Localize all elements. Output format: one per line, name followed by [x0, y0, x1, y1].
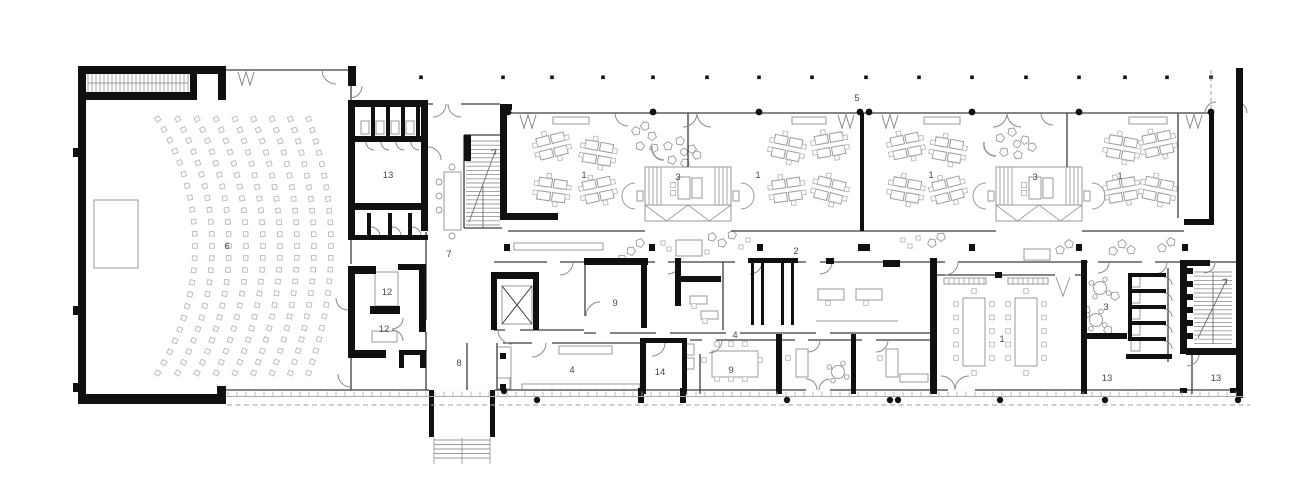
- seat: [281, 337, 287, 343]
- seat: [284, 161, 290, 167]
- door-arc: [532, 343, 546, 357]
- furniture: [1006, 302, 1011, 307]
- desk: [1145, 147, 1159, 158]
- lounge-table: [1014, 141, 1021, 148]
- seat: [224, 207, 229, 212]
- seat: [192, 231, 197, 236]
- furniture: [818, 289, 844, 300]
- seat: [200, 359, 206, 365]
- seat: [258, 279, 263, 284]
- furniture: [1042, 302, 1047, 307]
- furniture: [645, 205, 731, 221]
- seat: [199, 172, 205, 178]
- furniture: [715, 377, 720, 382]
- chair: [1102, 323, 1107, 328]
- chair: [1172, 186, 1177, 191]
- chair: [1093, 294, 1098, 299]
- chair: [612, 149, 617, 154]
- lounge-chair: [636, 142, 644, 151]
- facade-column: [1102, 397, 1108, 403]
- seat: [289, 302, 294, 307]
- desk-cluster: [1101, 129, 1143, 167]
- furniture: [954, 315, 959, 320]
- wall: [1076, 244, 1082, 251]
- seat: [227, 149, 233, 155]
- seat: [287, 314, 292, 319]
- door-triangle: [1056, 277, 1070, 296]
- coat-rack-icon: [238, 72, 254, 85]
- wall: [500, 213, 558, 220]
- room-label: 9: [612, 298, 617, 309]
- wall: [641, 258, 647, 328]
- furniture: [444, 172, 461, 230]
- chair: [826, 173, 831, 178]
- seat: [191, 337, 197, 343]
- door-arc: [560, 262, 573, 275]
- wall: [348, 203, 422, 210]
- seat: [191, 149, 197, 155]
- wall: [1128, 321, 1166, 325]
- furniture: [1131, 340, 1140, 351]
- chair: [886, 142, 891, 147]
- desk: [890, 135, 904, 146]
- chair: [769, 194, 774, 199]
- seat: [316, 150, 322, 156]
- seat: [289, 184, 294, 189]
- chair: [1170, 133, 1175, 138]
- seat: [180, 126, 186, 132]
- chair: [906, 202, 911, 207]
- furniture: [1006, 342, 1011, 347]
- room-label: 1: [755, 170, 760, 181]
- seat: [324, 302, 329, 307]
- desk-cluster: [766, 172, 807, 209]
- seat: [237, 303, 242, 308]
- desk: [585, 193, 599, 204]
- desk: [949, 139, 963, 150]
- seat: [207, 207, 212, 212]
- seat: [274, 196, 279, 201]
- furniture: [908, 244, 912, 248]
- wall: [419, 264, 426, 332]
- seat: [266, 161, 272, 167]
- furniture: [671, 191, 676, 196]
- chair: [801, 144, 806, 149]
- chair: [920, 145, 925, 150]
- wall: [1180, 260, 1187, 354]
- seat: [243, 256, 248, 261]
- desk: [893, 149, 907, 160]
- furniture: [1042, 315, 1047, 320]
- desk-cluster: [531, 172, 572, 209]
- furniture: [729, 342, 734, 347]
- desk: [946, 176, 961, 187]
- canopy-column: [651, 76, 655, 80]
- seat: [319, 325, 324, 330]
- door-arc: [808, 340, 820, 352]
- seat: [269, 173, 275, 179]
- chair: [557, 155, 562, 160]
- seat: [199, 315, 205, 321]
- wall: [371, 103, 375, 136]
- canopy-column: [1165, 76, 1169, 80]
- facade-column: [857, 109, 864, 116]
- seat: [225, 268, 230, 273]
- curved-seat: [622, 183, 635, 209]
- coat-rack-icon: [520, 115, 536, 128]
- coat-rack-icon: [882, 115, 898, 128]
- auditorium-seating: [155, 116, 334, 376]
- wall: [1081, 333, 1127, 339]
- desk: [772, 179, 786, 189]
- seat: [186, 348, 192, 354]
- chair: [896, 131, 901, 136]
- lounge-table: [681, 149, 688, 156]
- seat: [252, 172, 258, 178]
- chair: [783, 131, 788, 136]
- room-label: 3: [1103, 302, 1108, 313]
- wall: [649, 244, 655, 251]
- door-arc: [1041, 113, 1053, 125]
- desk: [890, 190, 904, 201]
- seat: [237, 359, 243, 365]
- wall: [1128, 273, 1132, 341]
- seat: [294, 232, 299, 237]
- seat: [167, 137, 173, 143]
- chair: [888, 151, 893, 156]
- wall: [388, 213, 392, 236]
- wall: [1209, 113, 1214, 219]
- chair: [532, 143, 537, 148]
- wall: [1236, 68, 1243, 398]
- wall: [883, 260, 900, 267]
- door-arc: [1098, 262, 1109, 273]
- seat: [328, 220, 333, 225]
- chair: [541, 131, 546, 136]
- desk: [582, 153, 596, 164]
- chair: [1170, 195, 1175, 200]
- seat: [275, 208, 280, 213]
- seat: [241, 208, 246, 213]
- desk: [1159, 179, 1173, 190]
- room-label: 13: [1211, 373, 1222, 384]
- wall: [748, 258, 798, 263]
- lounge-chair: [1000, 148, 1008, 157]
- chair: [810, 188, 815, 193]
- wall: [858, 244, 870, 251]
- wall: [751, 263, 754, 325]
- desk: [829, 132, 843, 143]
- desk: [1106, 148, 1120, 159]
- furniture: [1024, 371, 1029, 376]
- chair: [844, 187, 849, 192]
- seat: [308, 196, 313, 201]
- chair: [1103, 147, 1108, 152]
- seat: [243, 232, 248, 237]
- seat: [205, 195, 210, 200]
- wall: [1184, 219, 1214, 225]
- seat: [205, 291, 210, 296]
- desk: [551, 193, 565, 203]
- seat: [209, 231, 214, 236]
- canopy-column: [601, 76, 605, 80]
- chair: [813, 179, 818, 184]
- desk-cluster: [885, 171, 927, 209]
- furniture: [1042, 329, 1047, 334]
- wall: [190, 74, 197, 100]
- room-label: 14: [655, 367, 666, 378]
- desk: [788, 191, 802, 201]
- desk: [907, 146, 921, 157]
- seat: [245, 337, 251, 343]
- door-arc: [381, 142, 389, 150]
- furniture: [1024, 289, 1029, 294]
- desk: [773, 193, 787, 203]
- furniture: [990, 342, 995, 347]
- facade-column: [997, 397, 1003, 403]
- seat: [266, 325, 272, 331]
- room-label: 7: [446, 249, 451, 260]
- canopy-column: [970, 76, 974, 80]
- seat: [310, 208, 315, 213]
- seat: [249, 161, 255, 167]
- furniture: [900, 374, 928, 382]
- chair: [588, 175, 593, 180]
- seat: [272, 184, 277, 189]
- seat: [249, 325, 255, 331]
- chair: [834, 155, 839, 160]
- seat: [184, 183, 190, 189]
- chair: [962, 188, 967, 193]
- wall: [640, 338, 646, 394]
- room-label: 12: [382, 287, 393, 298]
- seat: [231, 326, 237, 332]
- door-arc: [1155, 262, 1167, 274]
- wall: [491, 272, 497, 330]
- lounge-chair: [650, 144, 659, 152]
- wall: [761, 263, 764, 325]
- chair: [1138, 189, 1143, 194]
- wall: [491, 272, 539, 279]
- seat: [241, 279, 246, 284]
- furniture: [1131, 276, 1140, 287]
- seat: [181, 315, 187, 321]
- wall: [464, 135, 471, 161]
- door-arc: [322, 70, 336, 84]
- seat: [208, 219, 213, 224]
- desk-cluster: [577, 134, 619, 172]
- furniture: [712, 351, 758, 377]
- seat: [213, 370, 219, 376]
- furniture: [705, 250, 709, 254]
- seat: [180, 359, 186, 365]
- seat: [224, 279, 229, 284]
- wall: [1128, 289, 1166, 293]
- coat-rack-icon: [838, 115, 854, 128]
- furniture: [729, 377, 734, 382]
- chair: [598, 165, 603, 170]
- desk: [817, 148, 831, 159]
- furniture: [671, 183, 676, 188]
- wall: [638, 388, 644, 403]
- wall: [1180, 260, 1210, 266]
- stool: [436, 179, 442, 185]
- seat: [155, 370, 161, 376]
- furniture: [559, 346, 612, 354]
- facade-column: [1076, 109, 1083, 116]
- furniture: [686, 344, 694, 355]
- chair: [1135, 153, 1140, 158]
- chair: [937, 175, 942, 180]
- seat: [172, 148, 178, 154]
- room-label: 3: [675, 172, 680, 183]
- seat: [186, 137, 192, 143]
- seat: [254, 184, 259, 189]
- furniture: [954, 342, 959, 347]
- chair: [535, 152, 540, 157]
- seat: [313, 139, 319, 145]
- seat: [327, 208, 332, 213]
- chair: [918, 135, 923, 140]
- seat: [329, 244, 334, 249]
- seat: [325, 196, 330, 201]
- chair: [552, 202, 557, 207]
- furniture: [361, 121, 369, 134]
- desk-cluster: [885, 127, 928, 166]
- seat: [227, 337, 233, 343]
- seat: [258, 208, 263, 213]
- seat: [304, 173, 309, 178]
- wall: [348, 208, 355, 240]
- wall: [421, 100, 428, 231]
- coat-rack-icon: [1186, 115, 1202, 128]
- seat: [272, 302, 277, 307]
- door-arc: [955, 376, 969, 390]
- furniture: [944, 278, 986, 284]
- door-arc: [652, 343, 665, 356]
- seat: [175, 370, 181, 376]
- seat: [295, 244, 300, 249]
- seat: [181, 171, 187, 177]
- door-arc: [945, 262, 958, 275]
- wall: [1186, 348, 1238, 355]
- seat: [195, 160, 201, 166]
- furniture: [1006, 329, 1011, 334]
- seat: [295, 348, 301, 354]
- desk: [935, 193, 950, 204]
- desk: [1157, 130, 1171, 141]
- wall: [930, 258, 937, 394]
- facade-column: [887, 397, 893, 403]
- furniture: [692, 178, 702, 198]
- seat: [209, 256, 214, 261]
- room-label: 4: [569, 365, 574, 376]
- chair: [580, 195, 585, 200]
- desk: [832, 180, 847, 191]
- seat: [200, 127, 206, 133]
- desk: [831, 145, 845, 156]
- chair: [566, 185, 571, 190]
- desk: [1159, 144, 1173, 155]
- desk-cluster: [766, 129, 809, 168]
- furniture: [406, 121, 414, 134]
- seat: [251, 370, 257, 376]
- door-arc: [366, 142, 374, 150]
- round-table: [1090, 314, 1103, 327]
- stool: [436, 207, 442, 213]
- desk: [788, 137, 802, 148]
- desk: [1109, 193, 1123, 204]
- seat: [311, 267, 316, 272]
- room-label: 13: [1102, 373, 1113, 384]
- desk: [1123, 190, 1137, 201]
- chair: [843, 135, 848, 140]
- furniture: [1042, 342, 1047, 347]
- furniture: [661, 241, 665, 245]
- door-arc: [1187, 354, 1199, 366]
- chair: [579, 152, 584, 157]
- wall: [1081, 260, 1087, 394]
- wall: [429, 390, 434, 437]
- furniture: [878, 356, 883, 361]
- seat: [277, 232, 282, 237]
- wall-line: [351, 70, 1192, 394]
- chair: [1140, 179, 1145, 184]
- furniture: [1022, 191, 1027, 196]
- door-arc: [338, 374, 351, 387]
- desk: [599, 142, 613, 153]
- wall: [386, 103, 390, 136]
- seat: [237, 127, 243, 133]
- room-label: 5: [854, 93, 859, 104]
- seat: [213, 116, 219, 122]
- chair: [961, 155, 966, 160]
- wall: [218, 74, 226, 100]
- wall: [675, 276, 721, 282]
- furniture: [637, 191, 643, 201]
- seat: [277, 138, 283, 144]
- chair: [564, 135, 569, 140]
- furniture: [972, 289, 977, 294]
- entrance-steps-side: [434, 438, 490, 464]
- lounge-chair: [1008, 128, 1016, 137]
- seat: [234, 314, 240, 320]
- door-arc: [941, 376, 955, 390]
- wall: [500, 104, 507, 220]
- seat: [322, 173, 327, 178]
- wall: [84, 92, 191, 100]
- seat: [311, 232, 316, 237]
- chair: [610, 179, 615, 184]
- room-label: 13: [383, 170, 394, 181]
- furniture: [743, 342, 748, 347]
- seat: [273, 359, 279, 365]
- room-label: 3: [1032, 172, 1037, 183]
- seat: [261, 244, 266, 249]
- facade-column: [866, 109, 873, 116]
- furniture: [514, 243, 603, 250]
- wall: [348, 66, 356, 86]
- stair-arrow: [1198, 272, 1227, 344]
- seat: [311, 220, 316, 225]
- door-arc: [448, 104, 461, 117]
- furniture: [1006, 356, 1011, 361]
- wall: [73, 383, 78, 392]
- chair: [928, 187, 933, 192]
- wall: [680, 388, 686, 403]
- furniture: [1022, 183, 1027, 188]
- seat: [313, 348, 319, 354]
